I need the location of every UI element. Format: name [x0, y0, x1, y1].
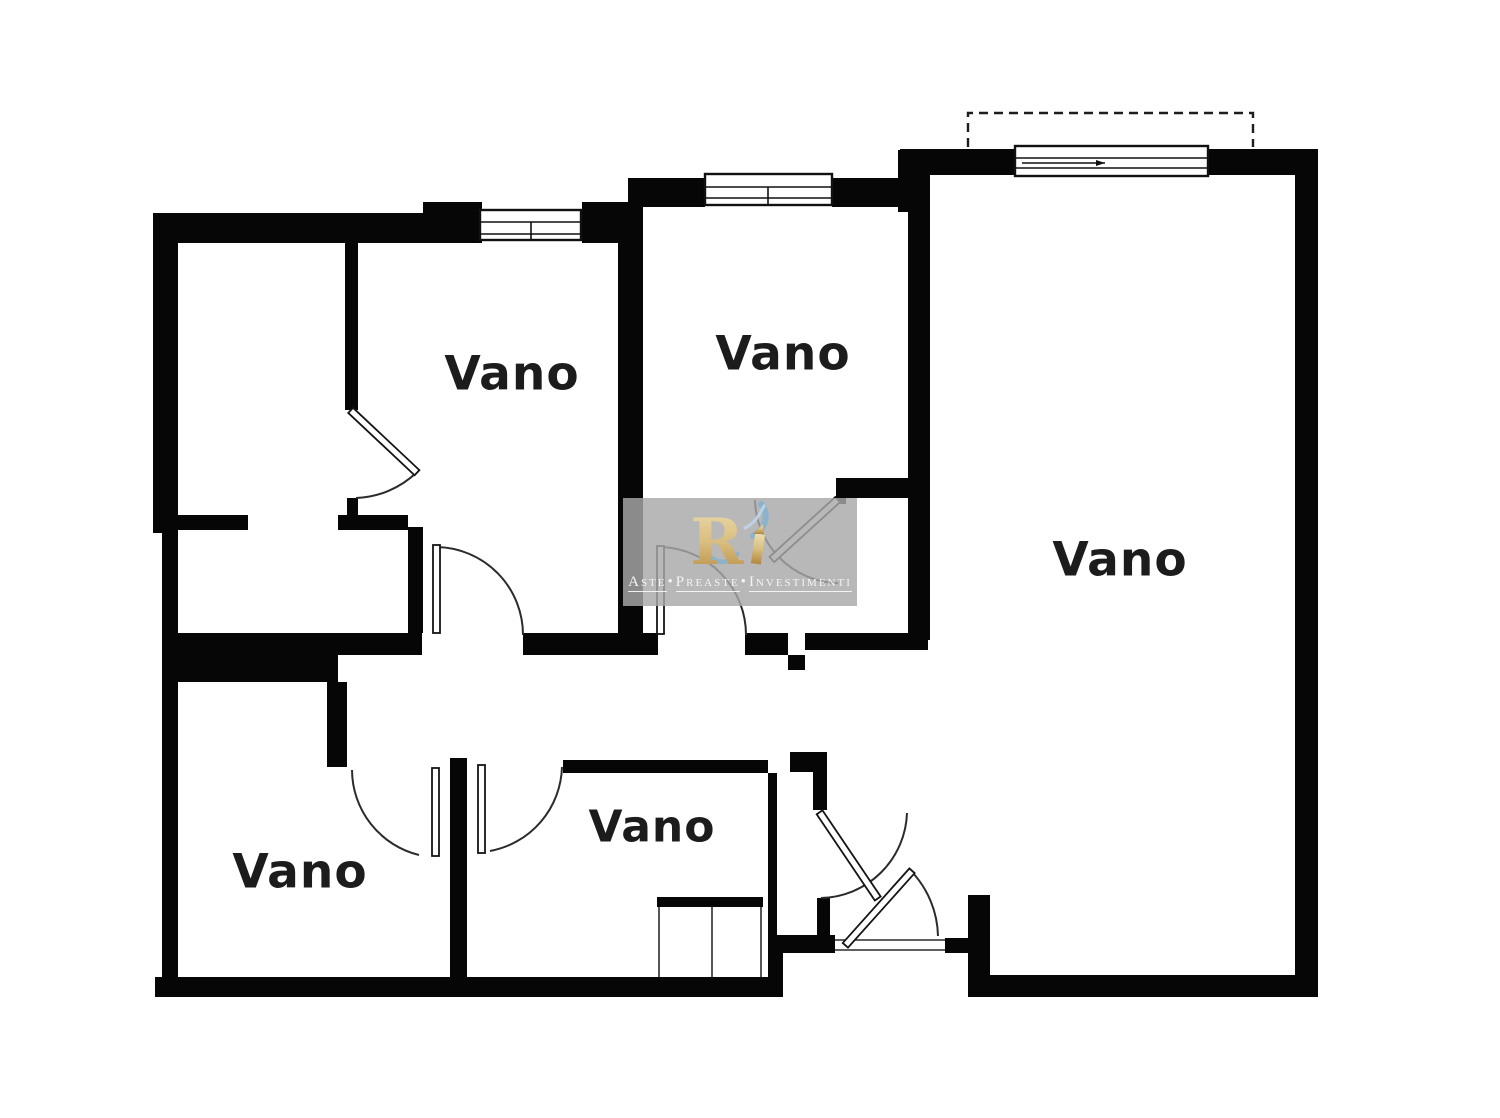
watermark-word: Investimenti [749, 574, 852, 592]
window-room1 [480, 210, 581, 240]
door-bottom-left-room [352, 768, 439, 856]
room-label-bottom-left: Vano [232, 845, 367, 900]
door-hallway [433, 545, 523, 635]
watermark-word: Aste [628, 574, 666, 592]
door-entrance [843, 868, 938, 947]
svg-text:R: R [690, 505, 744, 572]
room-label-bottom-middle: Vano [589, 802, 716, 853]
door-top-left-room [348, 408, 419, 498]
watermark: R Aste•Preaste•Investimenti [623, 498, 857, 606]
window-large-room [1015, 146, 1208, 176]
watermark-separator: • [740, 574, 749, 590]
watermark-word: Preaste [676, 574, 740, 592]
floorplan-page: Vano Vano Vano Vano Vano R Aste•Preaste•… [0, 0, 1500, 1118]
agency-logo-icon: R [665, 500, 815, 572]
watermark-separator: • [667, 574, 676, 590]
room-label-large: Vano [1052, 533, 1187, 588]
duct-shaft [659, 907, 761, 977]
watermark-text: Aste•Preaste•Investimenti [628, 574, 852, 591]
door-bottom-middle-room [478, 765, 562, 853]
window-room2 [705, 174, 832, 205]
room-label-top-middle: Vano [715, 327, 850, 382]
room-label-top-left: Vano [444, 347, 579, 402]
balcony-dashed-outline [968, 113, 1253, 147]
